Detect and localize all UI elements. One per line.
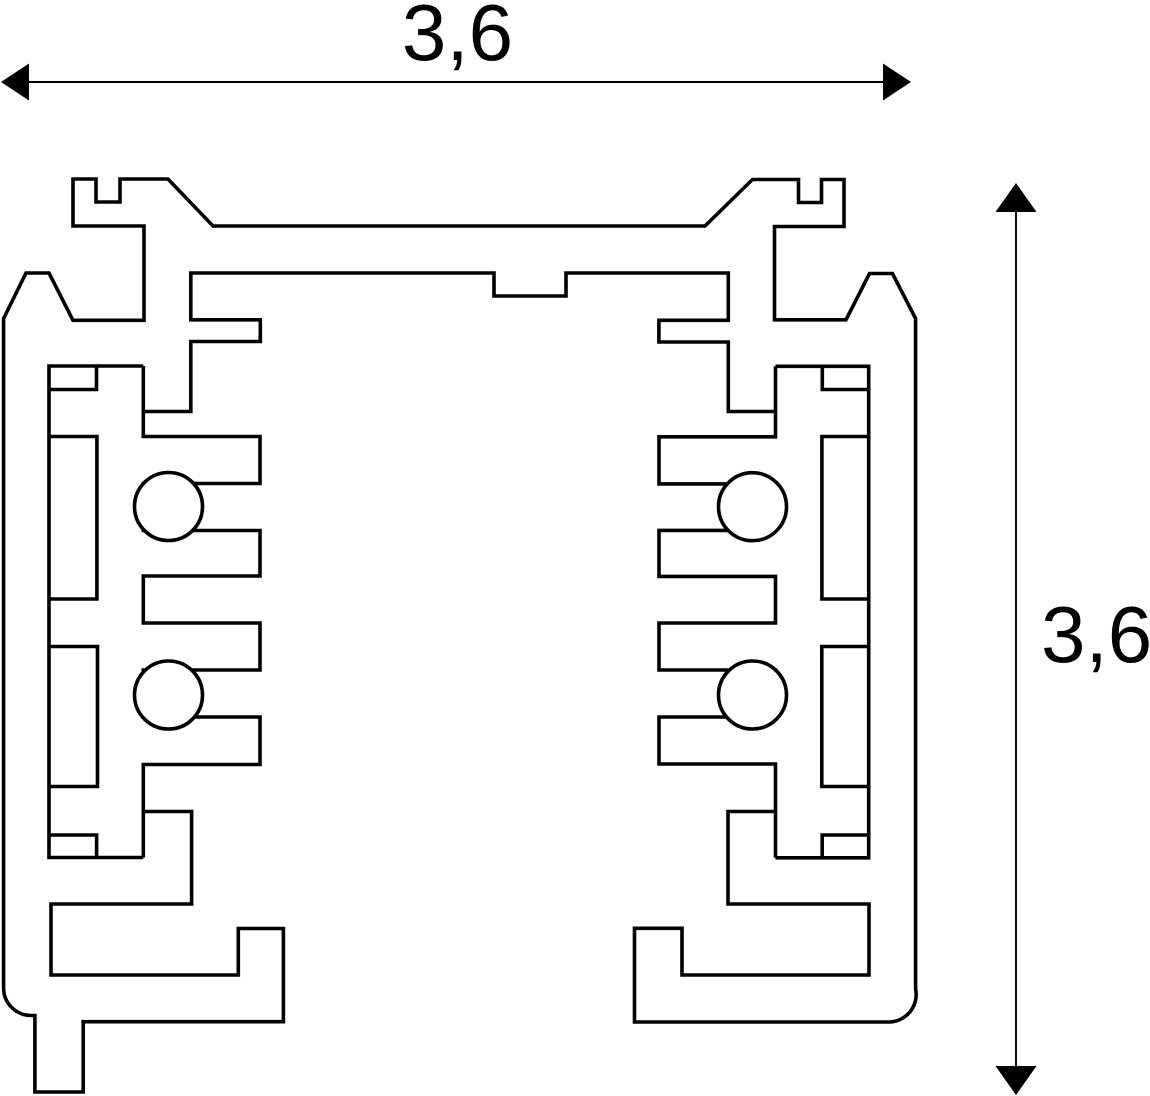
svg-text:3,6: 3,6	[402, 0, 513, 77]
svg-text:3,6: 3,6	[1041, 590, 1150, 679]
